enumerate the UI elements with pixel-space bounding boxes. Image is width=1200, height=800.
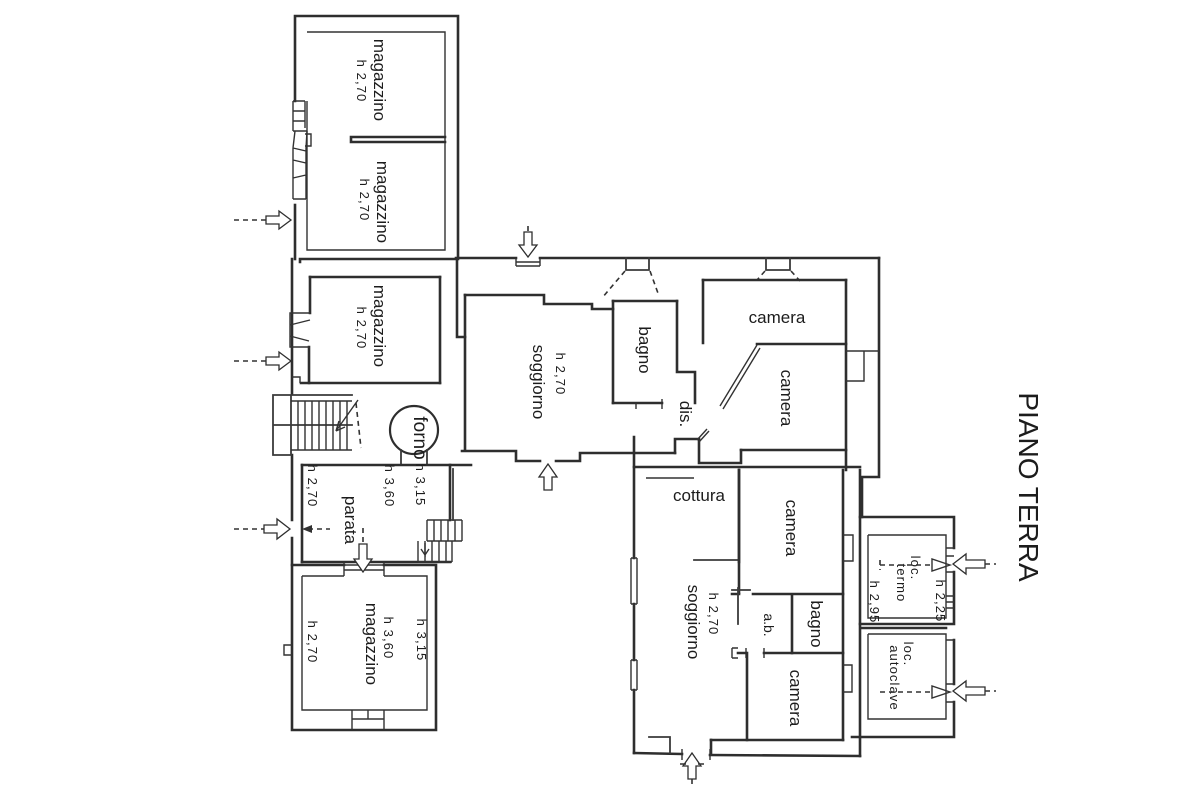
svg-text:h 3,60: h 3,60	[382, 465, 397, 508]
svg-text:h 3,15: h 3,15	[413, 464, 428, 507]
svg-text:soggiorno: soggiorno	[529, 345, 548, 420]
svg-text:soggiorno: soggiorno	[684, 585, 703, 660]
svg-text:magazzino: magazzino	[373, 161, 392, 243]
svg-text:forno: forno	[409, 416, 430, 459]
svg-text:h 3,60: h 3,60	[381, 617, 396, 660]
svg-text:magazzino: magazzino	[362, 603, 381, 685]
svg-text:h 2,95: h 2,95	[867, 581, 882, 624]
svg-text:loc.: loc.	[901, 642, 916, 667]
svg-text:camera: camera	[777, 370, 796, 427]
svg-text:h 2,70: h 2,70	[354, 307, 369, 350]
svg-text:dis.: dis.	[676, 401, 695, 427]
svg-text:h 2,70: h 2,70	[706, 593, 721, 636]
svg-text:bagno: bagno	[807, 600, 826, 647]
svg-text:a.b.: a.b.	[761, 613, 777, 636]
svg-text:h 3,15: h 3,15	[414, 619, 429, 662]
svg-text:camera: camera	[749, 308, 806, 327]
svg-text:h 2,70: h 2,70	[354, 60, 369, 103]
svg-text:h 2,70: h 2,70	[305, 465, 320, 508]
svg-text:h 2,70: h 2,70	[357, 179, 372, 222]
svg-text:parata: parata	[341, 496, 360, 545]
svg-text:PIANO TERRA: PIANO TERRA	[1013, 392, 1044, 582]
svg-text:h 2,70: h 2,70	[553, 353, 568, 396]
svg-text:magazzino: magazzino	[370, 39, 389, 121]
svg-text:loc.: loc.	[908, 556, 923, 581]
svg-text:autoclave: autoclave	[887, 645, 902, 711]
svg-text:h 2,25: h 2,25	[933, 580, 948, 623]
svg-text:camera: camera	[782, 500, 801, 557]
svg-text:magazzino: magazzino	[370, 285, 389, 367]
svg-text:camera: camera	[786, 670, 805, 727]
svg-text:cottura: cottura	[673, 486, 726, 505]
svg-text:termo: termo	[894, 564, 909, 603]
svg-text:bagno: bagno	[635, 326, 654, 373]
svg-text:h 2,70: h 2,70	[305, 621, 320, 664]
